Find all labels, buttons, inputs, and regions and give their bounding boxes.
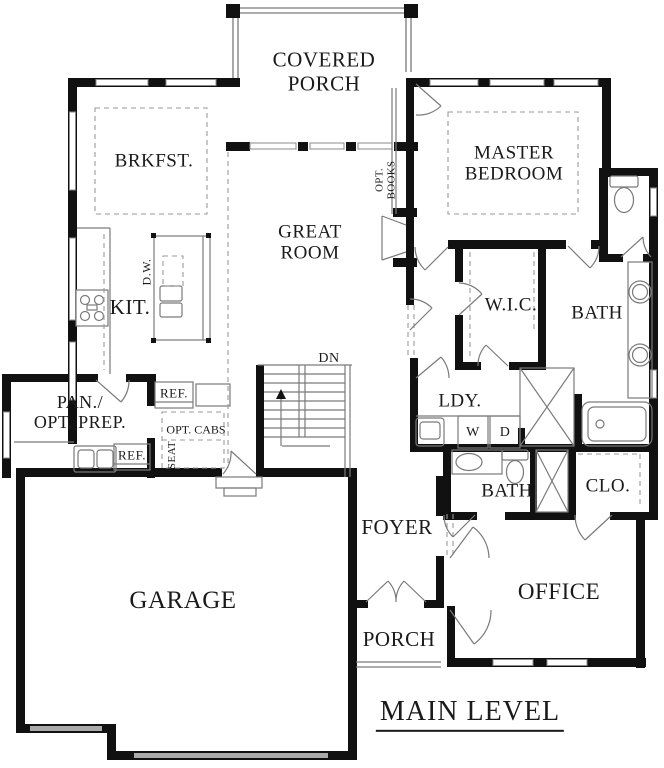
label-seat: SEAT: [166, 441, 178, 469]
cooktop: [76, 290, 108, 326]
garage-doors: [30, 726, 328, 758]
room-label-brkfst: BRKFST.: [115, 150, 194, 171]
front-double-door: [366, 581, 426, 602]
door-master-hall: [415, 247, 448, 270]
room-label-opt-books: OPT. BOOKS: [374, 161, 399, 200]
room-label-office: OFFICE: [518, 579, 600, 605]
label-opt-cabs: OPT. CABS: [166, 423, 225, 436]
plan-title: MAIN LEVEL: [376, 696, 564, 732]
dishwasher: [163, 256, 183, 286]
room-label-porch: PORCH: [363, 628, 436, 652]
room-label-kit: KIT.: [110, 296, 151, 320]
porch-edge: [356, 662, 441, 667]
door-office-porch: [450, 610, 491, 644]
room-label-wic: W.I.C.: [485, 294, 537, 315]
powder-vanity: [452, 450, 502, 474]
door-porch-master: [416, 84, 441, 115]
shower: [520, 368, 574, 446]
door-clo: [575, 515, 612, 540]
linen-closet: [536, 450, 568, 512]
fireplace-niche: [382, 216, 406, 260]
room-label-great-room: GREAT ROOM: [278, 222, 342, 265]
room-label-clo: CLO.: [586, 475, 631, 496]
label-ref-bottom: REF.: [118, 449, 146, 464]
room-label-foyer: FOYER: [361, 516, 432, 540]
porch-posts: [226, 4, 418, 18]
toilet-master: [610, 176, 638, 213]
foyer-hall-opening: [447, 514, 453, 556]
room-label-ldy: LDY.: [438, 390, 481, 411]
label-dryer: D: [500, 425, 511, 441]
door-wic-south: [478, 345, 508, 366]
laundry-sink: [416, 418, 444, 446]
floor-plan-drawing: [0, 0, 664, 768]
room-label-pan: PAN./ OPT. PREP.: [34, 392, 126, 432]
floor-plan: COVERED PORCH BRKFST. MASTER BEDROOM GRE…: [0, 0, 664, 768]
room-label-bath2: BATH: [481, 480, 533, 501]
room-label-garage: GARAGE: [129, 587, 236, 615]
room-label-master-bedroom: MASTER BEDROOM: [465, 143, 564, 186]
door-ldy: [416, 357, 449, 378]
hall-opening: [408, 305, 414, 358]
door-office-hall: [450, 527, 489, 558]
label-dn: DN: [318, 351, 339, 367]
staircase: [258, 365, 352, 477]
room-label-covered-porch: COVERED PORCH: [273, 48, 376, 95]
label-ref-top: REF.: [160, 387, 188, 402]
stairs-arrow: [276, 389, 286, 399]
garage-step: [216, 477, 262, 488]
toilet-powder: [502, 450, 528, 484]
bathtub: [582, 402, 652, 446]
label-washer: W: [466, 425, 480, 441]
island-sink: [160, 286, 182, 301]
label-dishwasher: D.W.: [140, 259, 153, 286]
master-vanity: [628, 262, 652, 398]
door-master-bath: [568, 246, 599, 268]
room-label-master-bath: BATH: [571, 302, 623, 323]
